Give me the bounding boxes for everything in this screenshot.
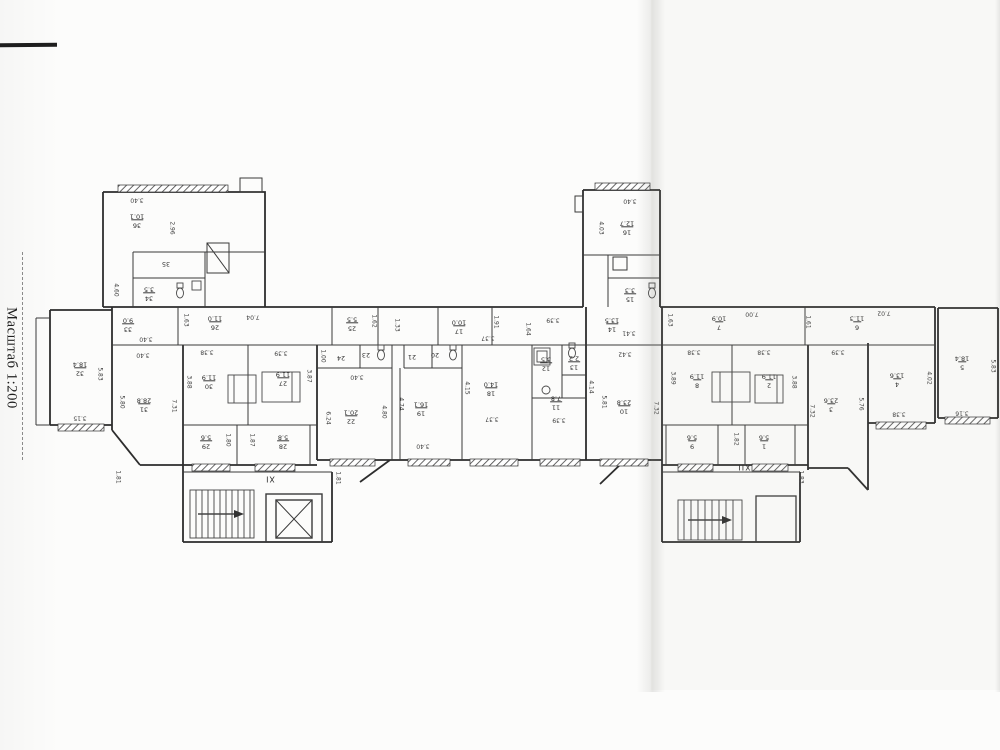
scanned-floorplan-page: { "meta": { "scale_label": "Масштаб 1:20…: [0, 0, 1000, 750]
furniture-beds: [228, 372, 783, 403]
interior-walls: [36, 178, 935, 472]
stairs-right-arrow: [722, 516, 732, 524]
stairs-left-arrow: [234, 510, 244, 518]
floor-plan-drawing: [0, 0, 1000, 750]
right-core-balcony: [756, 496, 796, 542]
exterior-walls: [50, 190, 998, 542]
window-hatches: [58, 183, 990, 471]
stairs-left: [190, 490, 254, 538]
elevator-shaft: [266, 494, 322, 542]
stairs-right: [678, 500, 742, 540]
